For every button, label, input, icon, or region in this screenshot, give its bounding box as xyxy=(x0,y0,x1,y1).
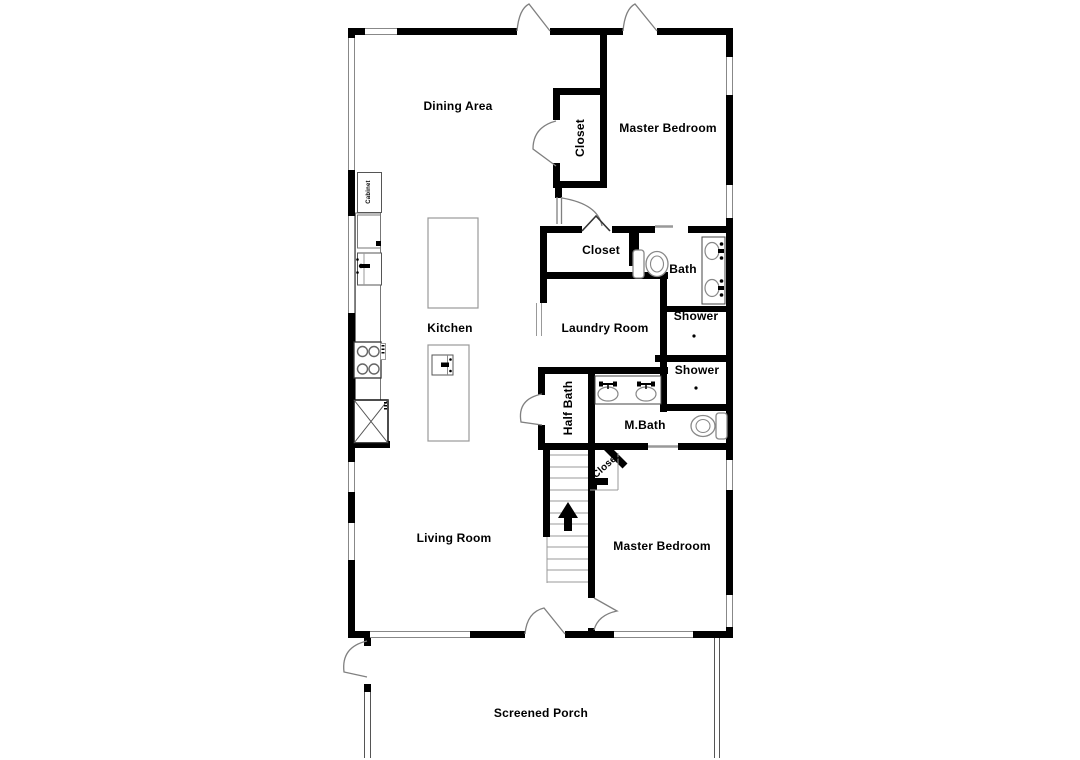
shower-drain-icon xyxy=(694,386,697,389)
room-label-closet-top: Closet xyxy=(573,119,587,157)
door-arc xyxy=(623,4,657,31)
master-vanity xyxy=(595,376,661,404)
room-label-master-bath: M.Bath xyxy=(624,418,665,432)
room-label-screened-porch: Screened Porch xyxy=(494,706,588,720)
door-leaf xyxy=(557,197,562,224)
room-label-bath: Bath xyxy=(669,262,696,276)
room-label-living: Living Room xyxy=(417,531,492,545)
kitchen-fixtures xyxy=(354,173,478,444)
double-vanity xyxy=(702,237,725,304)
base-cabinet xyxy=(358,215,382,248)
refrigerator-icon xyxy=(354,400,388,443)
fixtures-and-doors-layer xyxy=(0,0,1080,760)
room-label-kitchen: Kitchen xyxy=(427,321,472,335)
door-arc xyxy=(517,4,550,31)
toilet-icon xyxy=(691,413,727,439)
kitchen-sink-icon xyxy=(356,253,381,285)
stove-icon xyxy=(354,342,386,378)
door-arc xyxy=(344,641,367,677)
floor-plan-canvas: Dining Area Master Bedroom Closet Cabine… xyxy=(0,0,1080,760)
room-label-laundry: Laundry Room xyxy=(561,321,648,335)
door-arc xyxy=(562,198,602,226)
room-label-master-bedroom-bottom: Master Bedroom xyxy=(613,539,711,553)
fixture-label-cabinet: Cabinet xyxy=(366,180,372,203)
kitchen-island xyxy=(428,345,469,441)
bath-fixtures xyxy=(595,237,727,439)
stair-up-arrow-icon xyxy=(558,502,578,531)
dining-table xyxy=(428,218,478,308)
door-arc xyxy=(533,121,556,166)
door-swings xyxy=(344,4,657,677)
shower-drain-icon xyxy=(692,334,695,337)
cased-opening xyxy=(537,303,542,336)
room-label-half-bath: Half Bath xyxy=(561,381,575,435)
staircase xyxy=(547,455,588,583)
door-arc xyxy=(525,608,565,634)
door-arc xyxy=(520,394,542,425)
room-label-dining-area: Dining Area xyxy=(423,99,492,113)
door-arc xyxy=(594,598,617,630)
bifold-door-icon xyxy=(582,216,610,231)
room-label-closet-hall: Closet xyxy=(582,243,620,257)
room-label-master-bedroom-top: Master Bedroom xyxy=(619,121,717,135)
room-label-shower-upper: Shower xyxy=(674,309,719,323)
toilet-icon xyxy=(633,250,668,278)
room-label-shower-lower: Shower xyxy=(675,363,720,377)
